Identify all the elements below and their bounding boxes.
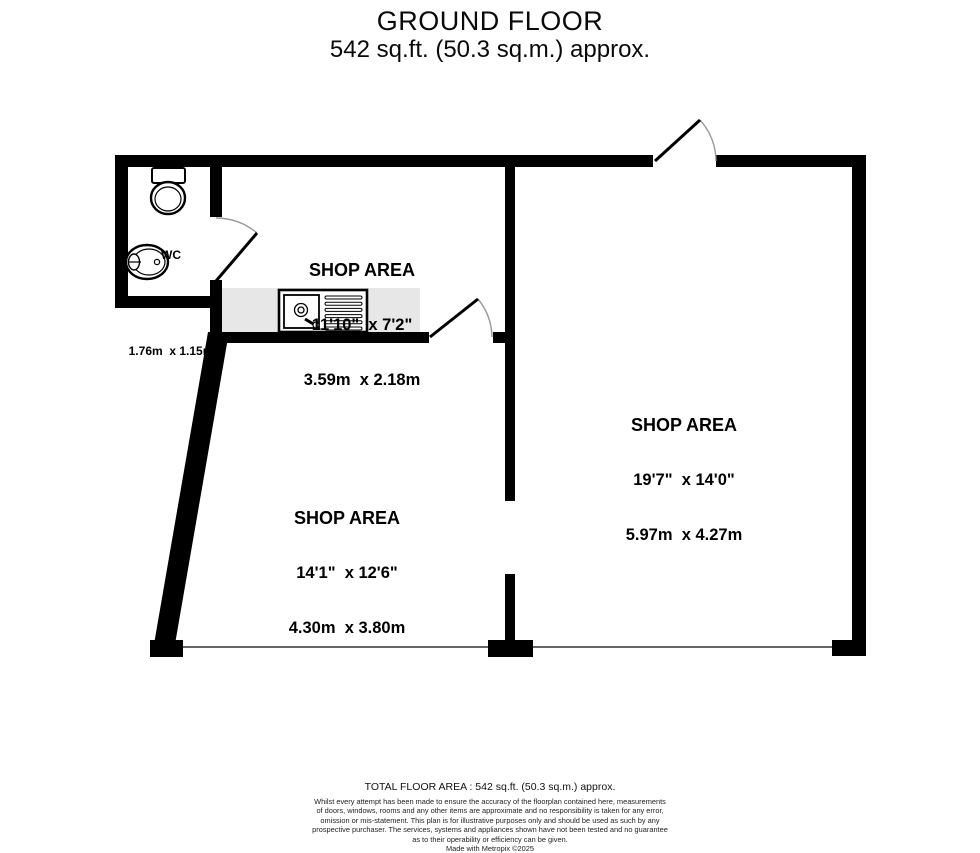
disclaimer-line: as to their operability or efficiency ca… xyxy=(0,835,980,844)
room-dim-imperial: 11'10" x 7'2" xyxy=(304,316,421,335)
room-dim-metric: 4.30m x 3.80m xyxy=(289,619,406,638)
middle-door-leaf-icon xyxy=(430,299,478,337)
toilet-icon xyxy=(151,168,185,214)
disclaimer: Whilst every attempt has been made to en… xyxy=(0,797,980,853)
disclaimer-line: prospective purchaser. The services, sys… xyxy=(0,825,980,834)
wall-top-left-segment xyxy=(115,155,653,167)
room-name: SHOP AREA xyxy=(289,508,406,528)
floorplan-canvas xyxy=(0,0,980,849)
wall-divider-upper xyxy=(505,167,515,501)
wall-wc-right-upper xyxy=(210,167,222,217)
floorplan-title: GROUND FLOOR 542 sq.ft. (50.3 sq.m.) app… xyxy=(0,6,980,63)
wall-left xyxy=(115,155,128,308)
room-dim-metric: 3.59m x 2.18m xyxy=(304,371,421,390)
wall-foot-left xyxy=(150,640,183,657)
room-label-shop-left: SHOP AREA 14'1" x 12'6" 4.30m x 3.80m xyxy=(289,472,406,656)
room-dim-metric: 5.97m x 4.27m xyxy=(626,526,743,545)
total-area-subtitle: 542 sq.ft. (50.3 sq.m.) approx. xyxy=(0,36,980,63)
entrance-door xyxy=(655,120,716,161)
wc-door xyxy=(216,218,257,281)
wall-divider-lower xyxy=(505,574,515,648)
ground-floor-label: GROUND FLOOR xyxy=(0,6,980,36)
walls xyxy=(115,155,866,657)
total-floor-area: TOTAL FLOOR AREA : 542 sq.ft. (50.3 sq.m… xyxy=(0,781,980,794)
disclaimer-line: of doors, windows, rooms and any other i… xyxy=(0,806,980,815)
wall-foot-right xyxy=(832,640,866,656)
wc-door-arc-icon xyxy=(216,218,257,233)
room-label-shop-top: SHOP AREA 11'10" x 7'2" 3.59m x 2.18m xyxy=(304,224,421,408)
wall-slanted-left xyxy=(153,332,229,650)
entrance-door-leaf-icon xyxy=(655,120,700,161)
wc-door-leaf-icon xyxy=(216,233,257,281)
room-dim-metric: 1.76m x 1.15m xyxy=(129,345,214,357)
wall-counter-bottom-right xyxy=(493,332,506,343)
disclaimer-line: Whilst every attempt has been made to en… xyxy=(0,797,980,806)
room-label-shop-right: SHOP AREA 19'7" x 14'0" 5.97m x 4.27m xyxy=(626,379,743,563)
wall-foot-middle xyxy=(488,640,533,657)
wall-right xyxy=(852,155,866,655)
disclaimer-line: omission or mis-statement. This plan is … xyxy=(0,816,980,825)
room-dim-imperial: 19'7" x 14'0" xyxy=(626,471,743,490)
middle-door-arc-icon xyxy=(478,299,492,337)
room-label-wc: WC 5'9" x 3'9" 1.76m x 1.15m xyxy=(129,213,214,375)
middle-door xyxy=(430,299,492,337)
room-dim-imperial: 14'1" x 12'6" xyxy=(289,564,406,583)
room-name: WC xyxy=(129,249,214,261)
entrance-door-arc-icon xyxy=(700,120,716,161)
room-dim-imperial: 5'9" x 3'9" xyxy=(129,297,214,309)
wall-top-right-segment xyxy=(716,155,866,167)
room-name: SHOP AREA xyxy=(626,415,743,435)
room-name: SHOP AREA xyxy=(304,260,421,280)
